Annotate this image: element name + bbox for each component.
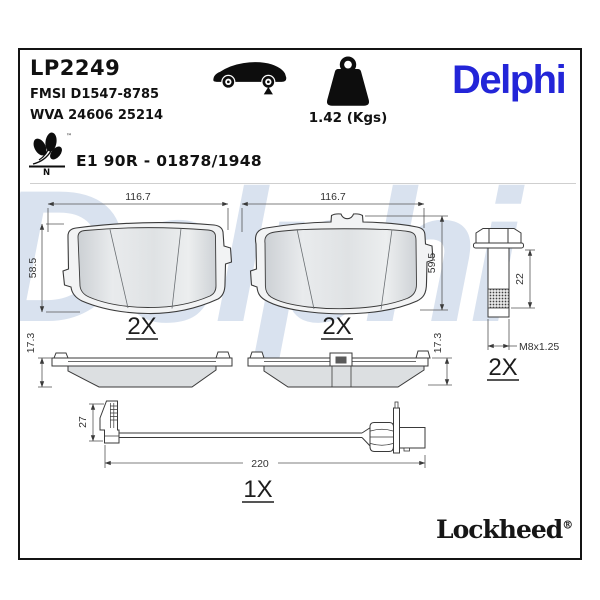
brake-pad-datasheet: { "header": { "part_number": "LP2249", "… xyxy=(0,0,600,600)
weight-icon xyxy=(318,55,378,115)
fmsi-code: FMSI D1547-8785 xyxy=(30,87,159,102)
ece-approval-text: E1 90R - 01878/1948 xyxy=(76,152,262,170)
header-divider xyxy=(30,183,576,184)
car-rear-axle-icon xyxy=(208,56,292,100)
part-number: LP2249 xyxy=(30,56,120,80)
trademark-symbol: ™ xyxy=(66,133,72,140)
eco-leaf-icon: N ™ xyxy=(27,131,73,181)
wva-code: WVA 24606 25214 xyxy=(30,108,163,123)
delphi-watermark: Delphi xyxy=(18,162,512,350)
delphi-logo: Delphi xyxy=(452,58,565,103)
eco-letter: N xyxy=(43,168,50,177)
lockheed-wordmark: Lockheed xyxy=(436,515,562,544)
registered-symbol: ® xyxy=(562,519,572,532)
rear-axle-marker-triangle xyxy=(264,87,273,94)
lockheed-logo: Lockheed® xyxy=(436,515,572,544)
